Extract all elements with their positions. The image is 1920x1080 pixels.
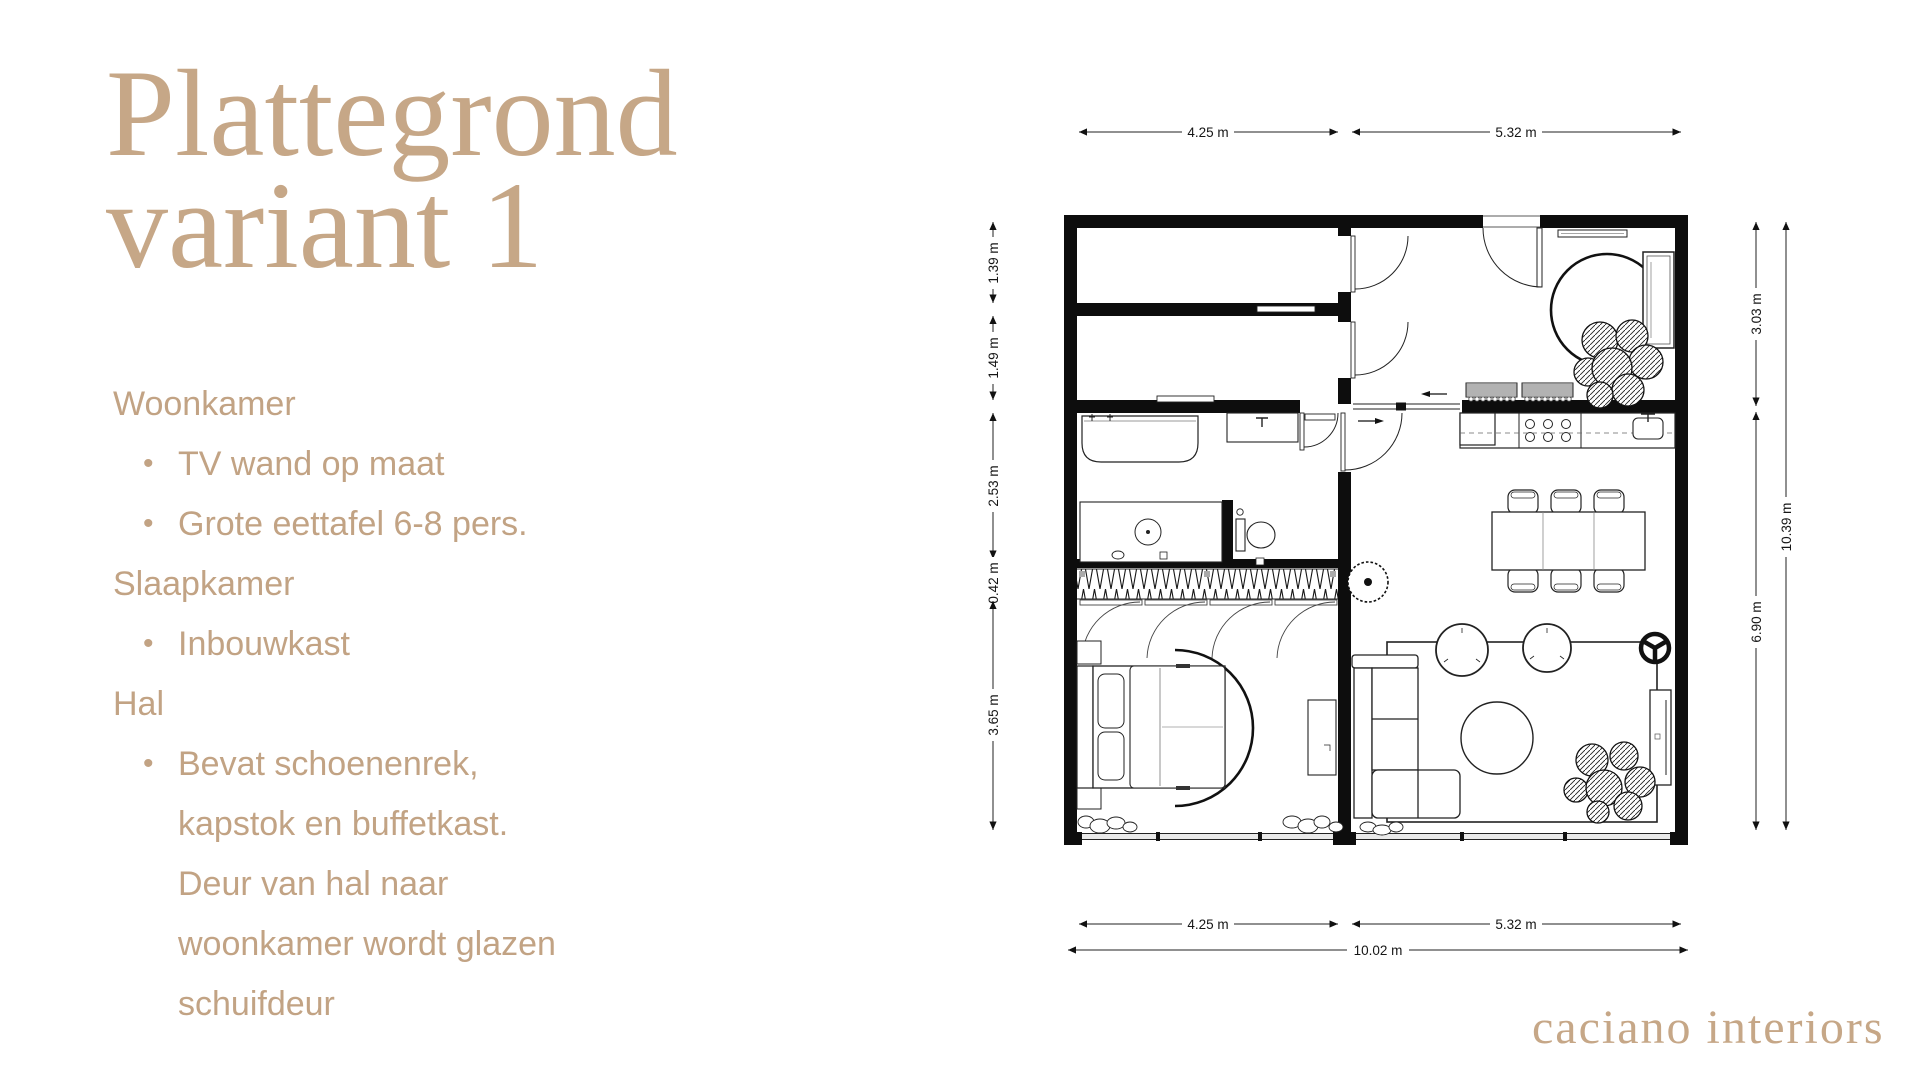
dining <box>1348 490 1645 602</box>
floor-lamp <box>1641 634 1669 662</box>
page-title-line2: variant 1 <box>106 170 678 282</box>
coffee-table <box>1461 702 1533 774</box>
pillow <box>1098 732 1124 780</box>
front-door-leaf <box>1537 228 1542 287</box>
note-bullet-eettafel: •Grote eettafel 6-8 pers. <box>113 494 583 554</box>
bathroom <box>1080 413 1338 565</box>
small-room-shelves <box>1157 306 1315 402</box>
note-bullet-tv-wand: •TV wand op maat <box>113 434 583 494</box>
sliding-door <box>1341 403 1460 472</box>
bathroom-door-leaf <box>1300 413 1304 450</box>
pouf <box>1523 624 1571 672</box>
dim-left-2: 1.49 m <box>986 337 1001 378</box>
dim-right-total: 10.39 m <box>1779 503 1794 552</box>
dim-left-4: 0.42 m <box>986 562 1001 603</box>
note-bullet-hal-detail: •Bevat schoenenrek, kapstok en buffetkas… <box>113 734 583 1034</box>
slide-arrow-right <box>1358 418 1384 424</box>
dim-top-right: 5.32 m <box>1495 125 1536 140</box>
dim-left-1: 1.39 m <box>986 242 1001 283</box>
sofa <box>1352 655 1460 818</box>
toilet-tank <box>1236 519 1245 551</box>
bed-headboard <box>1077 666 1093 788</box>
kitchen-cabinet <box>1460 413 1495 445</box>
closet-doors <box>1080 600 1337 658</box>
bullet-icon: • <box>143 434 154 494</box>
note-heading-slaapkamer: Slaapkamer <box>113 554 583 614</box>
dim-left-5: 3.65 m <box>986 694 1001 735</box>
dim-bottom-total: 10.02 m <box>1354 943 1403 958</box>
dim-right-2: 6.90 m <box>1749 601 1764 642</box>
dim-bottom-left: 4.25 m <box>1187 917 1228 932</box>
floorplan-drawing: 4.25 m 5.32 m 4.25 m 5.32 m 10.02 m 1.39… <box>960 80 1920 990</box>
dim-top-left: 4.25 m <box>1187 125 1228 140</box>
living-door-leaf <box>1341 413 1345 471</box>
front-door-arc <box>1483 228 1542 287</box>
bedroom <box>1077 641 1336 809</box>
note-heading-hal: Hal <box>113 674 583 734</box>
dim-left-3: 2.53 m <box>986 465 1001 506</box>
dim-bottom-right: 5.32 m <box>1495 917 1536 932</box>
nightstand <box>1077 786 1101 809</box>
note-heading-woonkamer: Woonkamer <box>113 374 583 434</box>
bullet-icon: • <box>143 614 154 674</box>
bullet-icon: • <box>143 494 154 554</box>
bathtub <box>1082 416 1198 462</box>
pillow <box>1098 674 1124 728</box>
dim-right-1: 3.03 m <box>1749 293 1764 334</box>
palm-plant <box>1564 742 1655 823</box>
bedroom-dresser <box>1308 700 1336 775</box>
dining-table <box>1492 512 1645 570</box>
shoe-racks <box>1466 383 1573 401</box>
toilet-bowl <box>1247 522 1275 548</box>
kitchen <box>1460 413 1675 448</box>
tv-sideboard <box>1650 690 1671 785</box>
notes-list: Woonkamer •TV wand op maat •Grote eettaf… <box>113 374 583 1034</box>
wardrobe <box>1077 569 1338 658</box>
nightstand <box>1077 641 1101 664</box>
note-bullet-inbouwkast: •Inbouwkast <box>113 614 583 674</box>
page-title-line1: Plattegrond <box>106 58 678 170</box>
page-title: Plattegrond variant 1 <box>106 58 678 282</box>
corridor-tree <box>1348 562 1388 602</box>
bullet-icon: • <box>143 734 154 794</box>
entry-arrow-left <box>1421 391 1447 397</box>
pouf <box>1436 624 1488 676</box>
brand-logo: caciano interiors <box>1532 1000 1885 1055</box>
